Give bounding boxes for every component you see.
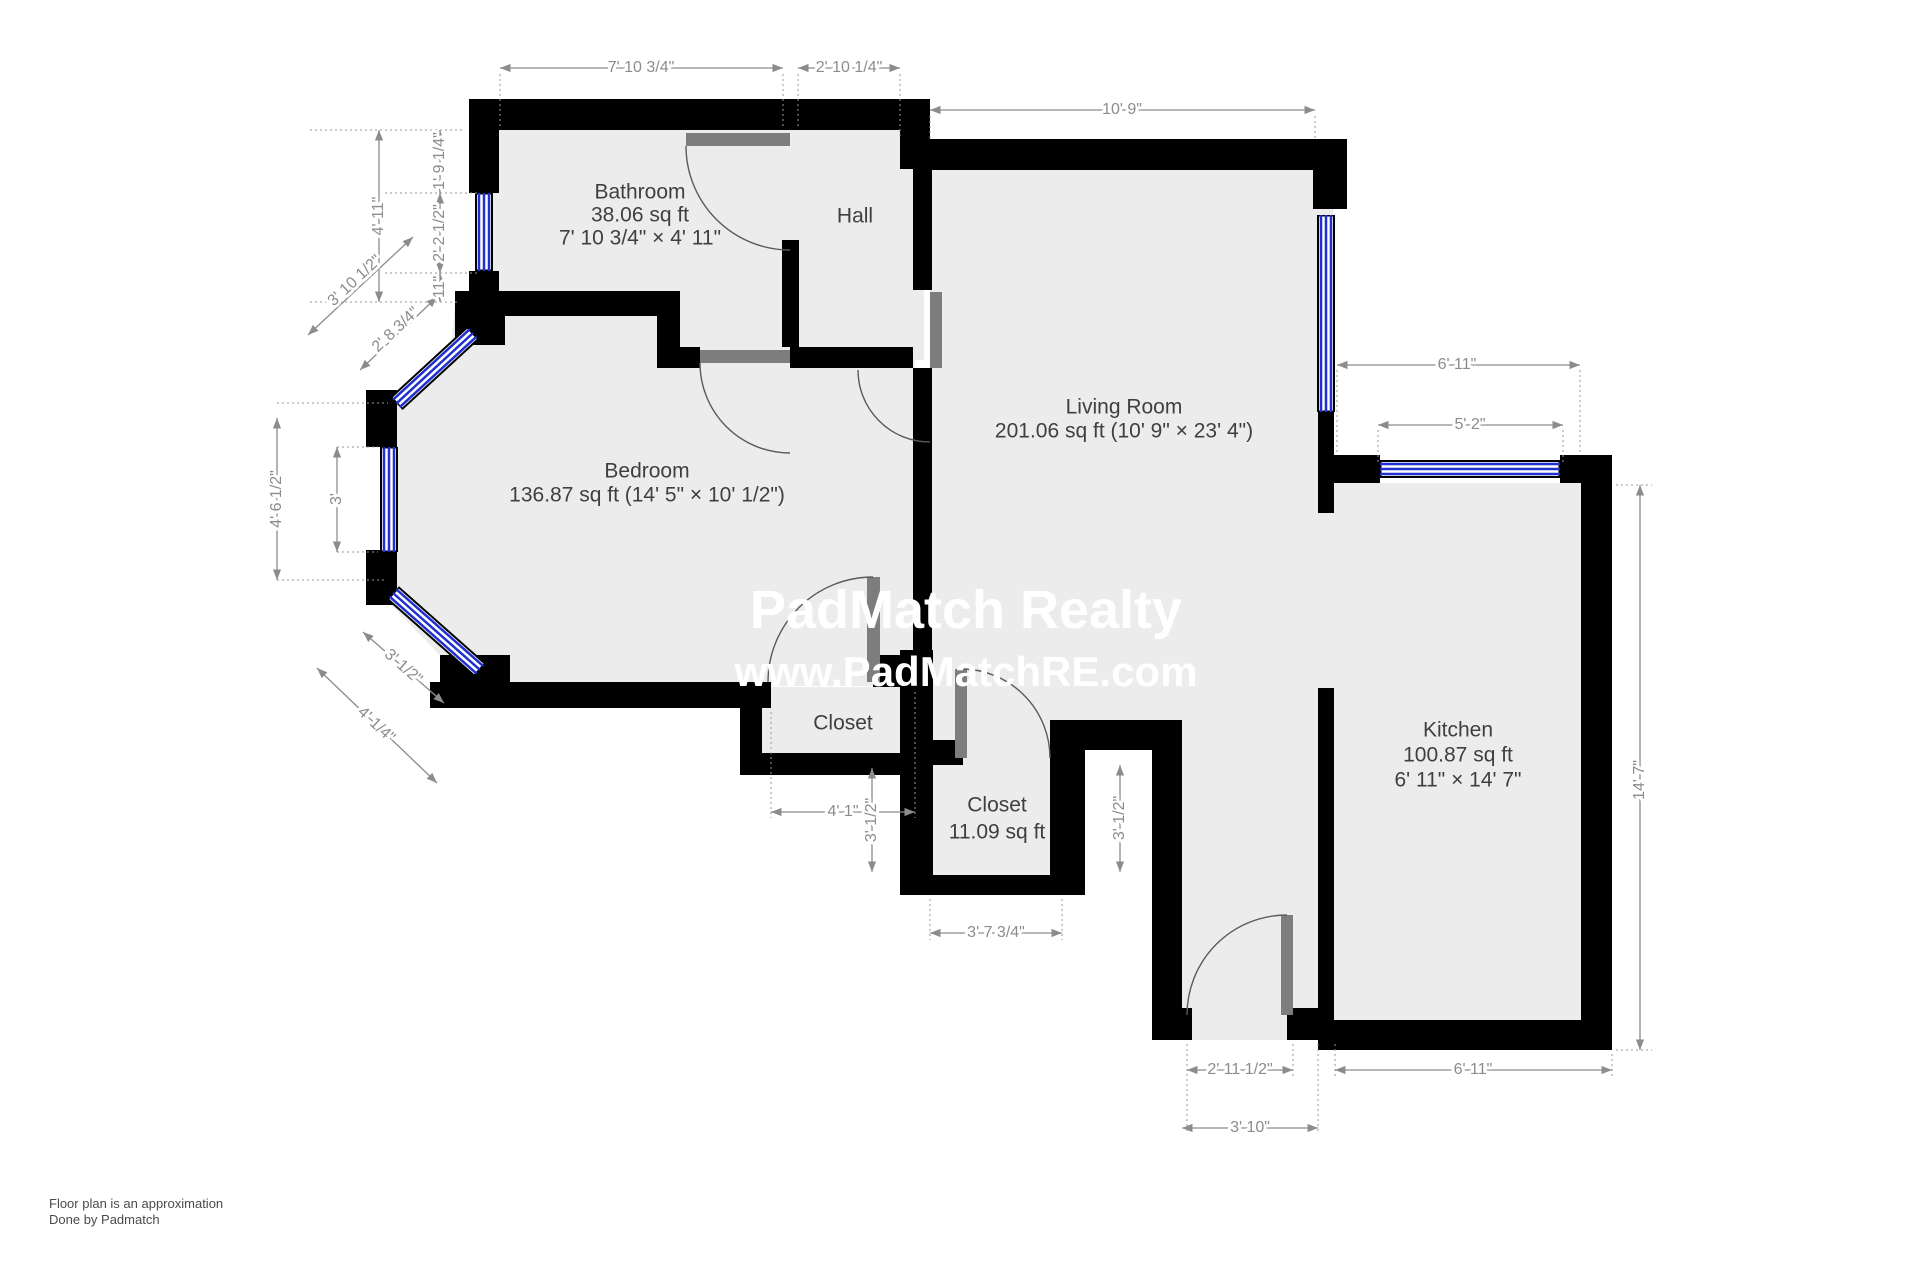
floor-plan-page: 7' 10 3/4" 2' 10 1/4" 10' 9" 4' 11" 1' 9… <box>0 0 1920 1280</box>
watermark: PadMatch Realty www.PadMatchRE.com <box>734 580 1198 695</box>
room-label-kitchen: Kitchen <box>1423 719 1493 742</box>
dim-label: 4' 11" <box>370 197 387 236</box>
dim-label: 3' 10 1/2" <box>325 252 385 310</box>
window-bathroom-left <box>475 193 493 271</box>
room-label-living-room-details: 201.06 sq ft (10' 9" × 23' 4") <box>995 420 1253 443</box>
dim-label: 2' 11 1/2" <box>1207 1061 1272 1078</box>
footer-line-2: Done by Padmatch <box>49 1212 223 1228</box>
footer-disclaimer: Floor plan is an approximation Done by P… <box>49 1196 223 1228</box>
room-label-bathroom: Bathroom <box>594 181 685 204</box>
dim-label: 3' 1/2" <box>863 798 880 842</box>
door-leaf <box>686 133 790 146</box>
dim-label: 3' 1/2" <box>1111 796 1128 840</box>
dim-label: 2' 8 3/4" <box>369 304 423 356</box>
room-label-bedroom-details: 136.87 sq ft (14' 5" × 10' 1/2") <box>509 484 785 507</box>
dim-label: 3' 1/2" <box>381 646 425 688</box>
dim-label: 3' 7 3/4" <box>967 924 1025 941</box>
dim-label: 1' 9 1/4" <box>431 132 448 190</box>
window-kitchen-top <box>1380 460 1560 478</box>
dim-label: 5' 2" <box>1455 416 1486 433</box>
dim-label: 7' 10 3/4" <box>608 59 675 76</box>
room-label-kitchen-area: 100.87 sq ft <box>1403 744 1513 767</box>
room-label-bathroom-size: 7' 10 3/4" × 4' 11" <box>559 227 721 250</box>
room-label-bathroom-area: 38.06 sq ft <box>591 204 689 227</box>
room-label-bedroom: Bedroom <box>604 460 689 483</box>
dim-label: 2' 2 1/2" <box>431 204 448 262</box>
door-leaf <box>1281 915 1293 1015</box>
watermark-url: www.PadMatchRE.com <box>734 648 1198 695</box>
dim-label: 11" <box>431 276 448 298</box>
room-label-hall: Hall <box>837 205 873 228</box>
dim-label: 2' 10 1/4" <box>816 59 883 76</box>
dim-label: 4' 1" <box>828 803 859 820</box>
dim-label: 6' 11" <box>1454 1061 1493 1078</box>
room-label-closet-2-area: 11.09 sq ft <box>949 821 1046 844</box>
dim-label: 3' 10" <box>1230 1119 1270 1136</box>
dim-label: 14' 7" <box>1631 760 1648 800</box>
footer-line-1: Floor plan is an approximation <box>49 1196 223 1212</box>
dim-label: 4' 1/4" <box>354 703 398 746</box>
room-label-closet-1: Closet <box>813 712 873 735</box>
room-label-kitchen-size: 6' 11" × 14' 7" <box>1394 769 1521 792</box>
dim-label: 4' 6 1/2" <box>268 470 285 528</box>
room-label-closet-2: Closet <box>967 794 1027 817</box>
dim-label: 10' 9" <box>1102 101 1142 118</box>
window-bay-left <box>380 447 398 552</box>
dim-label: 3' <box>328 493 345 505</box>
door-leaf <box>700 350 790 363</box>
room-label-living-room: Living Room <box>1066 396 1183 419</box>
dim-label: 6' 11" <box>1438 356 1477 373</box>
watermark-brand: PadMatch Realty <box>750 580 1182 640</box>
floor-plan-svg: 7' 10 3/4" 2' 10 1/4" 10' 9" 4' 11" 1' 9… <box>0 0 1920 1280</box>
door-leaf <box>930 292 942 368</box>
window-living-room-right <box>1317 215 1335 412</box>
